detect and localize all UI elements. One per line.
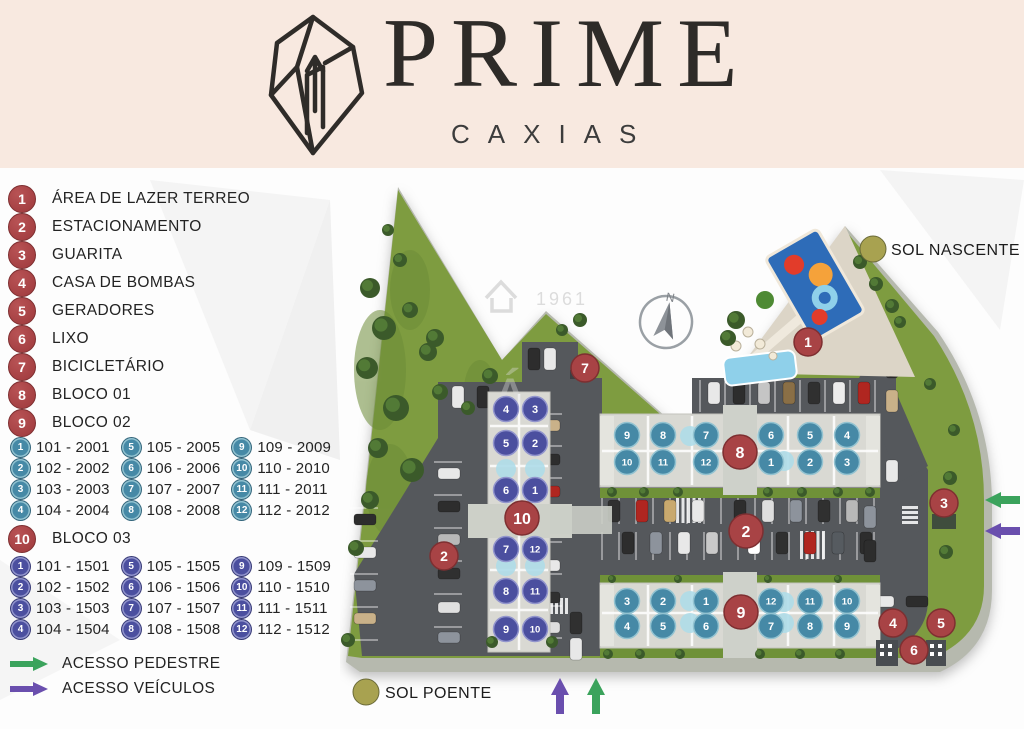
parked-car bbox=[808, 382, 820, 404]
unit-number-badge: 7 bbox=[121, 479, 142, 500]
unit-range-label: 105 - 2005 bbox=[147, 439, 221, 456]
legend-item-label: GERADORES bbox=[52, 302, 155, 320]
parked-car bbox=[758, 382, 770, 404]
brand-subtitle: CAXIAS bbox=[451, 119, 654, 150]
map-unit-b02-8: 8 bbox=[798, 614, 823, 639]
map-marker-1: 1 bbox=[794, 328, 822, 356]
play-equipment bbox=[756, 291, 774, 309]
red-number-badge: 1 bbox=[8, 185, 36, 213]
map-unit-b03-11: 11 bbox=[523, 579, 548, 604]
svg-text:12: 12 bbox=[530, 544, 541, 555]
unit-number-badge: 8 bbox=[121, 500, 142, 521]
map-marker-9: 9 bbox=[724, 595, 758, 629]
map-unit-b03-5: 5 bbox=[494, 431, 519, 456]
sun-poente: SOL POENTE bbox=[353, 679, 492, 705]
svg-text:12: 12 bbox=[766, 596, 777, 607]
svg-text:4: 4 bbox=[844, 430, 851, 442]
svg-text:8: 8 bbox=[660, 430, 666, 442]
bloco-03-unit-9: 9109 - 1509 bbox=[231, 556, 336, 577]
svg-text:5: 5 bbox=[503, 438, 509, 450]
bloco-03-unit-5: 5105 - 1505 bbox=[121, 556, 226, 577]
unit-number-badge: 2 bbox=[10, 577, 31, 598]
map-unit-b01-9: 9 bbox=[615, 423, 640, 448]
watermark-year: 1961 bbox=[536, 289, 588, 309]
svg-text:10: 10 bbox=[622, 457, 633, 468]
access-pedestrian-label: ACESSO PEDESTRE bbox=[62, 655, 220, 673]
unit-range-label: 111 - 1511 bbox=[257, 600, 327, 617]
map-marker-2: 2 bbox=[430, 542, 458, 570]
legend-item-5: 5GERADORES bbox=[8, 297, 338, 325]
map-unit-b01-6: 6 bbox=[759, 423, 784, 448]
parked-car bbox=[783, 382, 795, 404]
unit-list-blocos-01-02: 1101 - 20012102 - 20023103 - 20034104 - … bbox=[10, 437, 336, 521]
map-unit-b01-2: 2 bbox=[798, 450, 823, 475]
map-unit-b02-1: 1 bbox=[694, 589, 719, 614]
parked-car bbox=[886, 460, 898, 482]
unit-range-label: 108 - 2008 bbox=[147, 502, 221, 519]
unit-number-badge: 1 bbox=[10, 437, 31, 458]
bloco-03-unit-2: 2102 - 1502 bbox=[10, 577, 115, 598]
legend-item-6: 6LIXO bbox=[8, 325, 338, 353]
parked-car bbox=[706, 532, 718, 554]
compass-north-label: N bbox=[665, 290, 676, 305]
map-unit-b02-6: 6 bbox=[694, 614, 719, 639]
unit-number-badge: 9 bbox=[231, 556, 252, 577]
unit-range-label: 105 - 1505 bbox=[147, 558, 221, 575]
map-marker-4: 4 bbox=[879, 609, 907, 637]
red-number-badge: 9 bbox=[8, 409, 36, 437]
parked-car bbox=[906, 596, 928, 607]
access-pedestrian-row: ACESSO PEDESTRE bbox=[8, 651, 220, 676]
unit-range-label: 104 - 1504 bbox=[36, 621, 110, 638]
bloco-03-unit-3: 3103 - 1503 bbox=[10, 598, 115, 619]
svg-text:8: 8 bbox=[736, 445, 745, 462]
parked-car bbox=[354, 580, 376, 591]
red-number-badge: 3 bbox=[8, 241, 36, 269]
svg-text:11: 11 bbox=[805, 596, 816, 607]
legend-item-label: ESTACIONAMENTO bbox=[52, 218, 202, 236]
blocos-01-02-unit-8: 8108 - 2008 bbox=[121, 500, 226, 521]
parked-car bbox=[790, 500, 802, 522]
map-marker-6: 6 bbox=[900, 636, 928, 664]
sun-nascente: SOL NASCENTE bbox=[860, 236, 1020, 262]
parked-car bbox=[438, 468, 460, 479]
compass-icon: N bbox=[636, 286, 697, 352]
red-number-badge: 4 bbox=[8, 269, 36, 297]
parked-car bbox=[664, 500, 676, 522]
red-number-badge: 2 bbox=[8, 213, 36, 241]
site-plan-map: 1961 Á N SOL NASCENTE SOL POENTE 9876541… bbox=[340, 170, 1024, 724]
svg-text:1: 1 bbox=[532, 485, 538, 497]
unit-number-badge: 5 bbox=[121, 556, 142, 577]
parked-car bbox=[708, 382, 720, 404]
svg-text:8: 8 bbox=[503, 586, 509, 598]
svg-text:11: 11 bbox=[530, 586, 541, 597]
parked-car bbox=[438, 501, 460, 512]
parked-car bbox=[762, 500, 774, 522]
map-unit-b01-8: 8 bbox=[651, 423, 676, 448]
blocos-01-02-unit-10: 10110 - 2010 bbox=[231, 458, 336, 479]
legend-item-label: BICICLETÁRIO bbox=[52, 358, 164, 376]
map-unit-b02-11: 11 bbox=[798, 589, 823, 614]
map-unit-b02-5: 5 bbox=[651, 614, 676, 639]
blocos-01-02-unit-11: 11111 - 2011 bbox=[231, 479, 336, 500]
parked-car bbox=[477, 386, 489, 408]
svg-text:8: 8 bbox=[807, 621, 813, 633]
svg-text:3: 3 bbox=[844, 457, 850, 469]
unit-number-badge: 6 bbox=[121, 458, 142, 479]
map-unit-b01-10: 10 bbox=[615, 450, 640, 475]
unit-number-badge: 10 bbox=[231, 458, 252, 479]
unit-range-label: 101 - 1501 bbox=[36, 558, 110, 575]
map-unit-b01-5: 5 bbox=[798, 423, 823, 448]
svg-text:10: 10 bbox=[530, 624, 541, 635]
bloco-03-unit-6: 6106 - 1506 bbox=[121, 577, 226, 598]
unit-number-badge: 3 bbox=[10, 598, 31, 619]
blocos-01-02-unit-12: 12112 - 2012 bbox=[231, 500, 336, 521]
unit-range-label: 110 - 2010 bbox=[257, 460, 330, 477]
svg-text:9: 9 bbox=[737, 605, 746, 622]
legend-bloco03: 10BLOCO 03 bbox=[8, 525, 338, 553]
unit-range-label: 108 - 1508 bbox=[147, 621, 221, 638]
legend-item-label: LIXO bbox=[52, 330, 89, 348]
unit-number-badge: 12 bbox=[231, 500, 252, 521]
parked-car bbox=[864, 506, 876, 528]
svg-text:1: 1 bbox=[703, 596, 709, 608]
svg-text:2: 2 bbox=[440, 548, 448, 564]
parked-car bbox=[776, 532, 788, 554]
red-number-badge: 7 bbox=[8, 353, 36, 381]
svg-text:7: 7 bbox=[768, 621, 774, 633]
map-unit-b03-1: 1 bbox=[523, 478, 548, 503]
unit-range-label: 111 - 2011 bbox=[257, 481, 327, 498]
bloco-03-unit-11: 11111 - 1511 bbox=[231, 598, 336, 619]
parked-car bbox=[570, 638, 582, 660]
unit-range-label: 103 - 2003 bbox=[36, 481, 110, 498]
pedestrian-access-arrow-bottom bbox=[587, 678, 605, 714]
sun-poente-label: SOL POENTE bbox=[385, 685, 492, 702]
bloco-03-unit-7: 7107 - 1507 bbox=[121, 598, 226, 619]
legend-item-label: ÁREA DE LAZER TERREO bbox=[52, 190, 250, 208]
unit-number-badge: 3 bbox=[10, 479, 31, 500]
unit-range-label: 104 - 2004 bbox=[36, 502, 110, 519]
blocos-01-02-unit-1: 1101 - 2001 bbox=[10, 437, 115, 458]
blocos-01-02-unit-5: 5105 - 2005 bbox=[121, 437, 226, 458]
blocos-01-02-unit-3: 3103 - 2003 bbox=[10, 479, 115, 500]
map-marker-8: 8 bbox=[723, 435, 757, 469]
unit-number-badge: 2 bbox=[10, 458, 31, 479]
svg-text:3: 3 bbox=[624, 596, 630, 608]
map-unit-b03-7: 7 bbox=[494, 537, 519, 562]
svg-text:7: 7 bbox=[703, 430, 709, 442]
svg-text:6: 6 bbox=[910, 642, 918, 658]
blocos-01-02-unit-6: 6106 - 2006 bbox=[121, 458, 226, 479]
unit-range-label: 110 - 1510 bbox=[257, 579, 330, 596]
map-unit-b02-4: 4 bbox=[615, 614, 640, 639]
vehicle-access-arrow-bottom bbox=[551, 678, 569, 714]
map-unit-b03-10: 10 bbox=[523, 617, 548, 642]
unit-number-badge: 12 bbox=[231, 619, 252, 640]
legend-item-2: 2ESTACIONAMENTO bbox=[8, 213, 338, 241]
parked-car bbox=[864, 540, 876, 562]
svg-text:7: 7 bbox=[581, 360, 589, 376]
parked-car bbox=[570, 612, 582, 634]
svg-text:2: 2 bbox=[742, 524, 751, 541]
parked-car bbox=[833, 382, 845, 404]
legend-item-10: 10BLOCO 03 bbox=[8, 525, 338, 553]
unit-list-bloco-03: 1101 - 15012102 - 15023103 - 15034104 - … bbox=[10, 556, 336, 640]
unit-range-label: 107 - 2007 bbox=[147, 481, 221, 498]
map-marker-5: 5 bbox=[927, 609, 955, 637]
purple-right-arrow-icon bbox=[8, 681, 48, 697]
red-number-badge: 5 bbox=[8, 297, 36, 325]
svg-text:2: 2 bbox=[532, 438, 538, 450]
parked-car bbox=[438, 632, 460, 643]
svg-text:4: 4 bbox=[889, 615, 897, 631]
unit-number-badge: 4 bbox=[10, 500, 31, 521]
bloco-03-unit-4: 4104 - 1504 bbox=[10, 619, 115, 640]
bloco-03-unit-10: 10110 - 1510 bbox=[231, 577, 336, 598]
unit-range-label: 101 - 2001 bbox=[36, 439, 110, 456]
access-vehicles-label: ACESSO VEÍCULOS bbox=[62, 680, 215, 698]
red-number-badge: 8 bbox=[8, 381, 36, 409]
parked-car bbox=[354, 514, 376, 525]
map-marker-10: 10 bbox=[505, 501, 539, 535]
map-unit-b01-12: 12 bbox=[694, 450, 719, 475]
unit-number-badge: 10 bbox=[231, 577, 252, 598]
svg-text:3: 3 bbox=[940, 495, 948, 511]
svg-text:4: 4 bbox=[624, 621, 631, 633]
parked-car bbox=[818, 500, 830, 522]
blocos-01-02-unit-4: 4104 - 2004 bbox=[10, 500, 115, 521]
parked-car bbox=[650, 532, 662, 554]
unit-range-label: 109 - 1509 bbox=[257, 558, 331, 575]
parked-car bbox=[846, 500, 858, 522]
svg-text:6: 6 bbox=[768, 430, 774, 442]
map-unit-b02-7: 7 bbox=[759, 614, 784, 639]
access-legend: ACESSO PEDESTRE ACESSO VEÍCULOS bbox=[8, 651, 220, 701]
header: PRIME CAXIAS bbox=[0, 0, 1024, 168]
map-unit-b01-7: 7 bbox=[694, 423, 719, 448]
parked-car bbox=[622, 532, 634, 554]
brand-logo-gem-icon bbox=[263, 13, 367, 159]
map-unit-b02-12: 12 bbox=[759, 589, 784, 614]
unit-number-badge: 5 bbox=[121, 437, 142, 458]
map-unit-b03-2: 2 bbox=[523, 431, 548, 456]
legend-item-label: BLOCO 03 bbox=[52, 530, 131, 548]
map-unit-b02-9: 9 bbox=[835, 614, 860, 639]
svg-text:6: 6 bbox=[503, 485, 509, 497]
unit-number-badge: 8 bbox=[121, 619, 142, 640]
svg-text:11: 11 bbox=[658, 457, 669, 468]
parked-car bbox=[678, 532, 690, 554]
unit-number-badge: 9 bbox=[231, 437, 252, 458]
bloco-03-unit-1: 1101 - 1501 bbox=[10, 556, 115, 577]
map-unit-b03-8: 8 bbox=[494, 579, 519, 604]
unit-range-label: 107 - 1507 bbox=[147, 600, 221, 617]
bloco-03-unit-12: 12112 - 1512 bbox=[231, 619, 336, 640]
legend-item-3: 3GUARITA bbox=[8, 241, 338, 269]
unit-number-badge: 1 bbox=[10, 556, 31, 577]
blocos-01-02-unit-9: 9109 - 2009 bbox=[231, 437, 336, 458]
unit-range-label: 103 - 1503 bbox=[36, 600, 110, 617]
svg-text:2: 2 bbox=[807, 457, 813, 469]
site-plan-svg: 1961 Á N SOL NASCENTE SOL POENTE 9876541… bbox=[340, 170, 1024, 724]
map-unit-b01-3: 3 bbox=[835, 450, 860, 475]
legend-item-8: 8BLOCO 01 bbox=[8, 381, 338, 409]
parked-car bbox=[692, 500, 704, 522]
legend-item-1: 1ÁREA DE LAZER TERREO bbox=[8, 185, 338, 213]
svg-text:1: 1 bbox=[768, 457, 774, 469]
svg-text:9: 9 bbox=[844, 621, 850, 633]
unit-number-badge: 4 bbox=[10, 619, 31, 640]
svg-text:5: 5 bbox=[937, 615, 945, 631]
svg-text:9: 9 bbox=[503, 624, 509, 636]
legend-item-label: CASA DE BOMBAS bbox=[52, 274, 195, 292]
svg-text:9: 9 bbox=[624, 430, 630, 442]
green-right-arrow-icon bbox=[8, 656, 48, 672]
red-number-badge: 6 bbox=[8, 325, 36, 353]
legend-item-4: 4CASA DE BOMBAS bbox=[8, 269, 338, 297]
parked-car bbox=[438, 602, 460, 613]
map-unit-b01-11: 11 bbox=[651, 450, 676, 475]
bloco-03-unit-8: 8108 - 1508 bbox=[121, 619, 226, 640]
unit-number-badge: 7 bbox=[121, 598, 142, 619]
unit-range-label: 102 - 1502 bbox=[36, 579, 110, 596]
map-unit-b01-4: 4 bbox=[835, 423, 860, 448]
blocos-01-02-unit-7: 7107 - 2007 bbox=[121, 479, 226, 500]
parked-car bbox=[354, 613, 376, 624]
svg-text:10: 10 bbox=[842, 596, 853, 607]
unit-range-label: 106 - 1506 bbox=[147, 579, 221, 596]
map-unit-b03-9: 9 bbox=[494, 617, 519, 642]
blocos-01-02-unit-2: 2102 - 2002 bbox=[10, 458, 115, 479]
svg-text:1: 1 bbox=[804, 334, 812, 350]
parked-car bbox=[636, 500, 648, 522]
parked-car bbox=[804, 532, 816, 554]
map-unit-b03-12: 12 bbox=[523, 537, 548, 562]
map-unit-b03-4: 4 bbox=[494, 397, 519, 422]
legend-item-label: BLOCO 02 bbox=[52, 414, 131, 432]
unit-range-label: 112 - 1512 bbox=[257, 621, 330, 638]
map-unit-b02-3: 3 bbox=[615, 589, 640, 614]
unit-number-badge: 6 bbox=[121, 577, 142, 598]
svg-text:2: 2 bbox=[660, 596, 666, 608]
map-unit-b03-6: 6 bbox=[494, 478, 519, 503]
map-marker-7: 7 bbox=[571, 354, 599, 382]
map-unit-b01-1: 1 bbox=[759, 450, 784, 475]
parked-car bbox=[832, 532, 844, 554]
map-unit-b03-3: 3 bbox=[523, 397, 548, 422]
sun-nascente-label: SOL NASCENTE bbox=[891, 242, 1020, 259]
map-marker-3: 3 bbox=[930, 489, 958, 517]
parked-car bbox=[858, 382, 870, 404]
unit-number-badge: 11 bbox=[231, 479, 252, 500]
unit-range-label: 109 - 2009 bbox=[257, 439, 331, 456]
svg-text:10: 10 bbox=[513, 511, 531, 528]
svg-text:3: 3 bbox=[532, 404, 538, 416]
legend-item-9: 9BLOCO 02 bbox=[8, 409, 338, 437]
svg-text:7: 7 bbox=[503, 544, 509, 556]
legend-item-label: GUARITA bbox=[52, 246, 123, 264]
parked-car bbox=[544, 348, 556, 370]
unit-range-label: 112 - 2012 bbox=[257, 502, 330, 519]
unit-range-label: 106 - 2006 bbox=[147, 460, 221, 477]
map-unit-b02-2: 2 bbox=[651, 589, 676, 614]
red-number-badge: 10 bbox=[8, 525, 36, 553]
unit-range-label: 102 - 2002 bbox=[36, 460, 110, 477]
legend-item-7: 7BICICLETÁRIO bbox=[8, 353, 338, 381]
legend-item-label: BLOCO 01 bbox=[52, 386, 131, 404]
map-unit-b02-10: 10 bbox=[835, 589, 860, 614]
legend-main: 1ÁREA DE LAZER TERREO2ESTACIONAMENTO3GUA… bbox=[8, 185, 338, 437]
svg-text:4: 4 bbox=[503, 404, 510, 416]
parked-car bbox=[886, 390, 898, 412]
map-marker-2: 2 bbox=[729, 514, 763, 548]
svg-text:12: 12 bbox=[701, 457, 712, 468]
svg-text:5: 5 bbox=[807, 430, 813, 442]
unit-number-badge: 11 bbox=[231, 598, 252, 619]
brand-title: PRIME bbox=[383, 2, 751, 106]
svg-text:5: 5 bbox=[660, 621, 666, 633]
svg-text:6: 6 bbox=[703, 621, 709, 633]
access-vehicles-row: ACESSO VEÍCULOS bbox=[8, 676, 220, 701]
